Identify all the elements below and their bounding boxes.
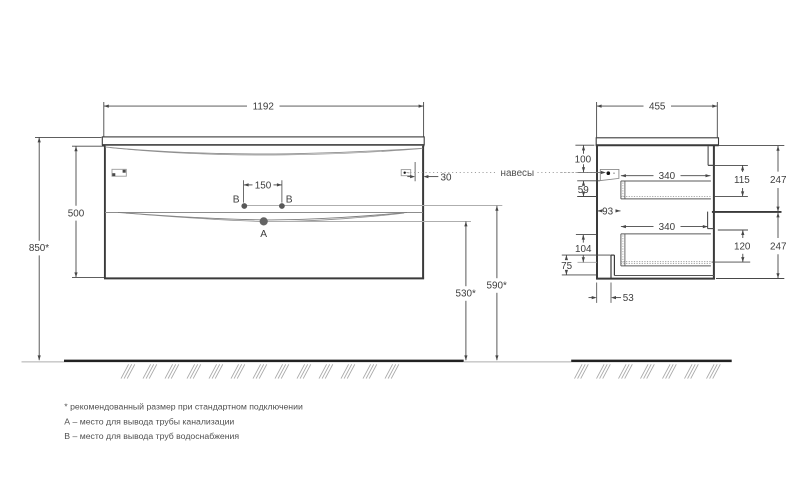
svg-text:1192: 1192 xyxy=(253,102,274,113)
svg-text:115: 115 xyxy=(734,175,750,186)
svg-text:навесы: навесы xyxy=(500,168,534,179)
svg-text:455: 455 xyxy=(649,102,666,113)
svg-text:340: 340 xyxy=(659,171,676,182)
svg-text:590*: 590* xyxy=(487,280,507,291)
svg-text:B: B xyxy=(286,194,293,205)
svg-text:340: 340 xyxy=(659,222,676,233)
svg-text:850*: 850* xyxy=(29,243,49,254)
svg-text:150: 150 xyxy=(255,180,272,191)
svg-text:93: 93 xyxy=(602,206,613,217)
svg-text:* рекомендованный размер при с: * рекомендованный размер при стандартном… xyxy=(64,402,303,412)
svg-text:59: 59 xyxy=(578,185,589,196)
svg-text:А – место для вывода трубы кан: А – место для вывода трубы канализации xyxy=(64,416,234,426)
svg-text:500: 500 xyxy=(68,208,85,219)
svg-text:104: 104 xyxy=(575,244,592,255)
svg-text:В – место для вывода труб водо: В – место для вывода труб водоснабжения xyxy=(64,431,239,441)
svg-text:247: 247 xyxy=(770,175,786,186)
svg-text:53: 53 xyxy=(623,293,634,304)
svg-text:247: 247 xyxy=(770,241,786,252)
svg-text:30: 30 xyxy=(441,173,452,184)
svg-text:75: 75 xyxy=(561,261,572,272)
svg-text:100: 100 xyxy=(575,154,592,165)
svg-text:530*: 530* xyxy=(456,288,476,299)
svg-text:B: B xyxy=(233,194,240,205)
svg-text:A: A xyxy=(260,229,267,240)
svg-text:120: 120 xyxy=(734,241,751,252)
